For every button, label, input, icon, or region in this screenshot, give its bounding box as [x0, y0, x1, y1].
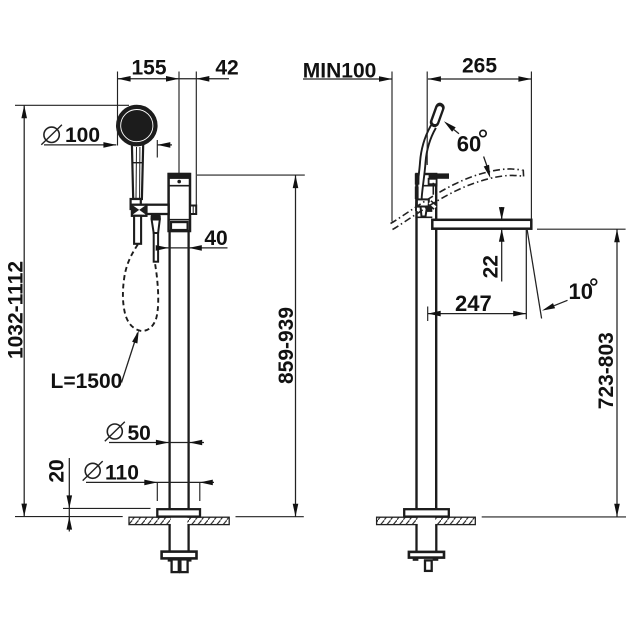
svg-text:40: 40 — [204, 227, 227, 250]
svg-text:100: 100 — [65, 124, 100, 147]
svg-text:60: 60 — [457, 132, 481, 157]
svg-text:110: 110 — [105, 462, 139, 485]
svg-text:10: 10 — [569, 279, 593, 304]
svg-text:22: 22 — [480, 255, 503, 278]
svg-text:859-939: 859-939 — [275, 307, 298, 384]
svg-text:247: 247 — [455, 291, 492, 316]
svg-text:20: 20 — [46, 459, 69, 482]
svg-text:265: 265 — [462, 55, 497, 78]
svg-text:1032-1112: 1032-1112 — [5, 261, 28, 359]
svg-text:42: 42 — [215, 57, 238, 80]
svg-text:MIN100: MIN100 — [303, 60, 377, 83]
svg-text:L=1500: L=1500 — [51, 370, 123, 393]
svg-text:155: 155 — [131, 57, 166, 80]
svg-text:50: 50 — [128, 422, 151, 445]
svg-text:723-803: 723-803 — [595, 332, 618, 409]
